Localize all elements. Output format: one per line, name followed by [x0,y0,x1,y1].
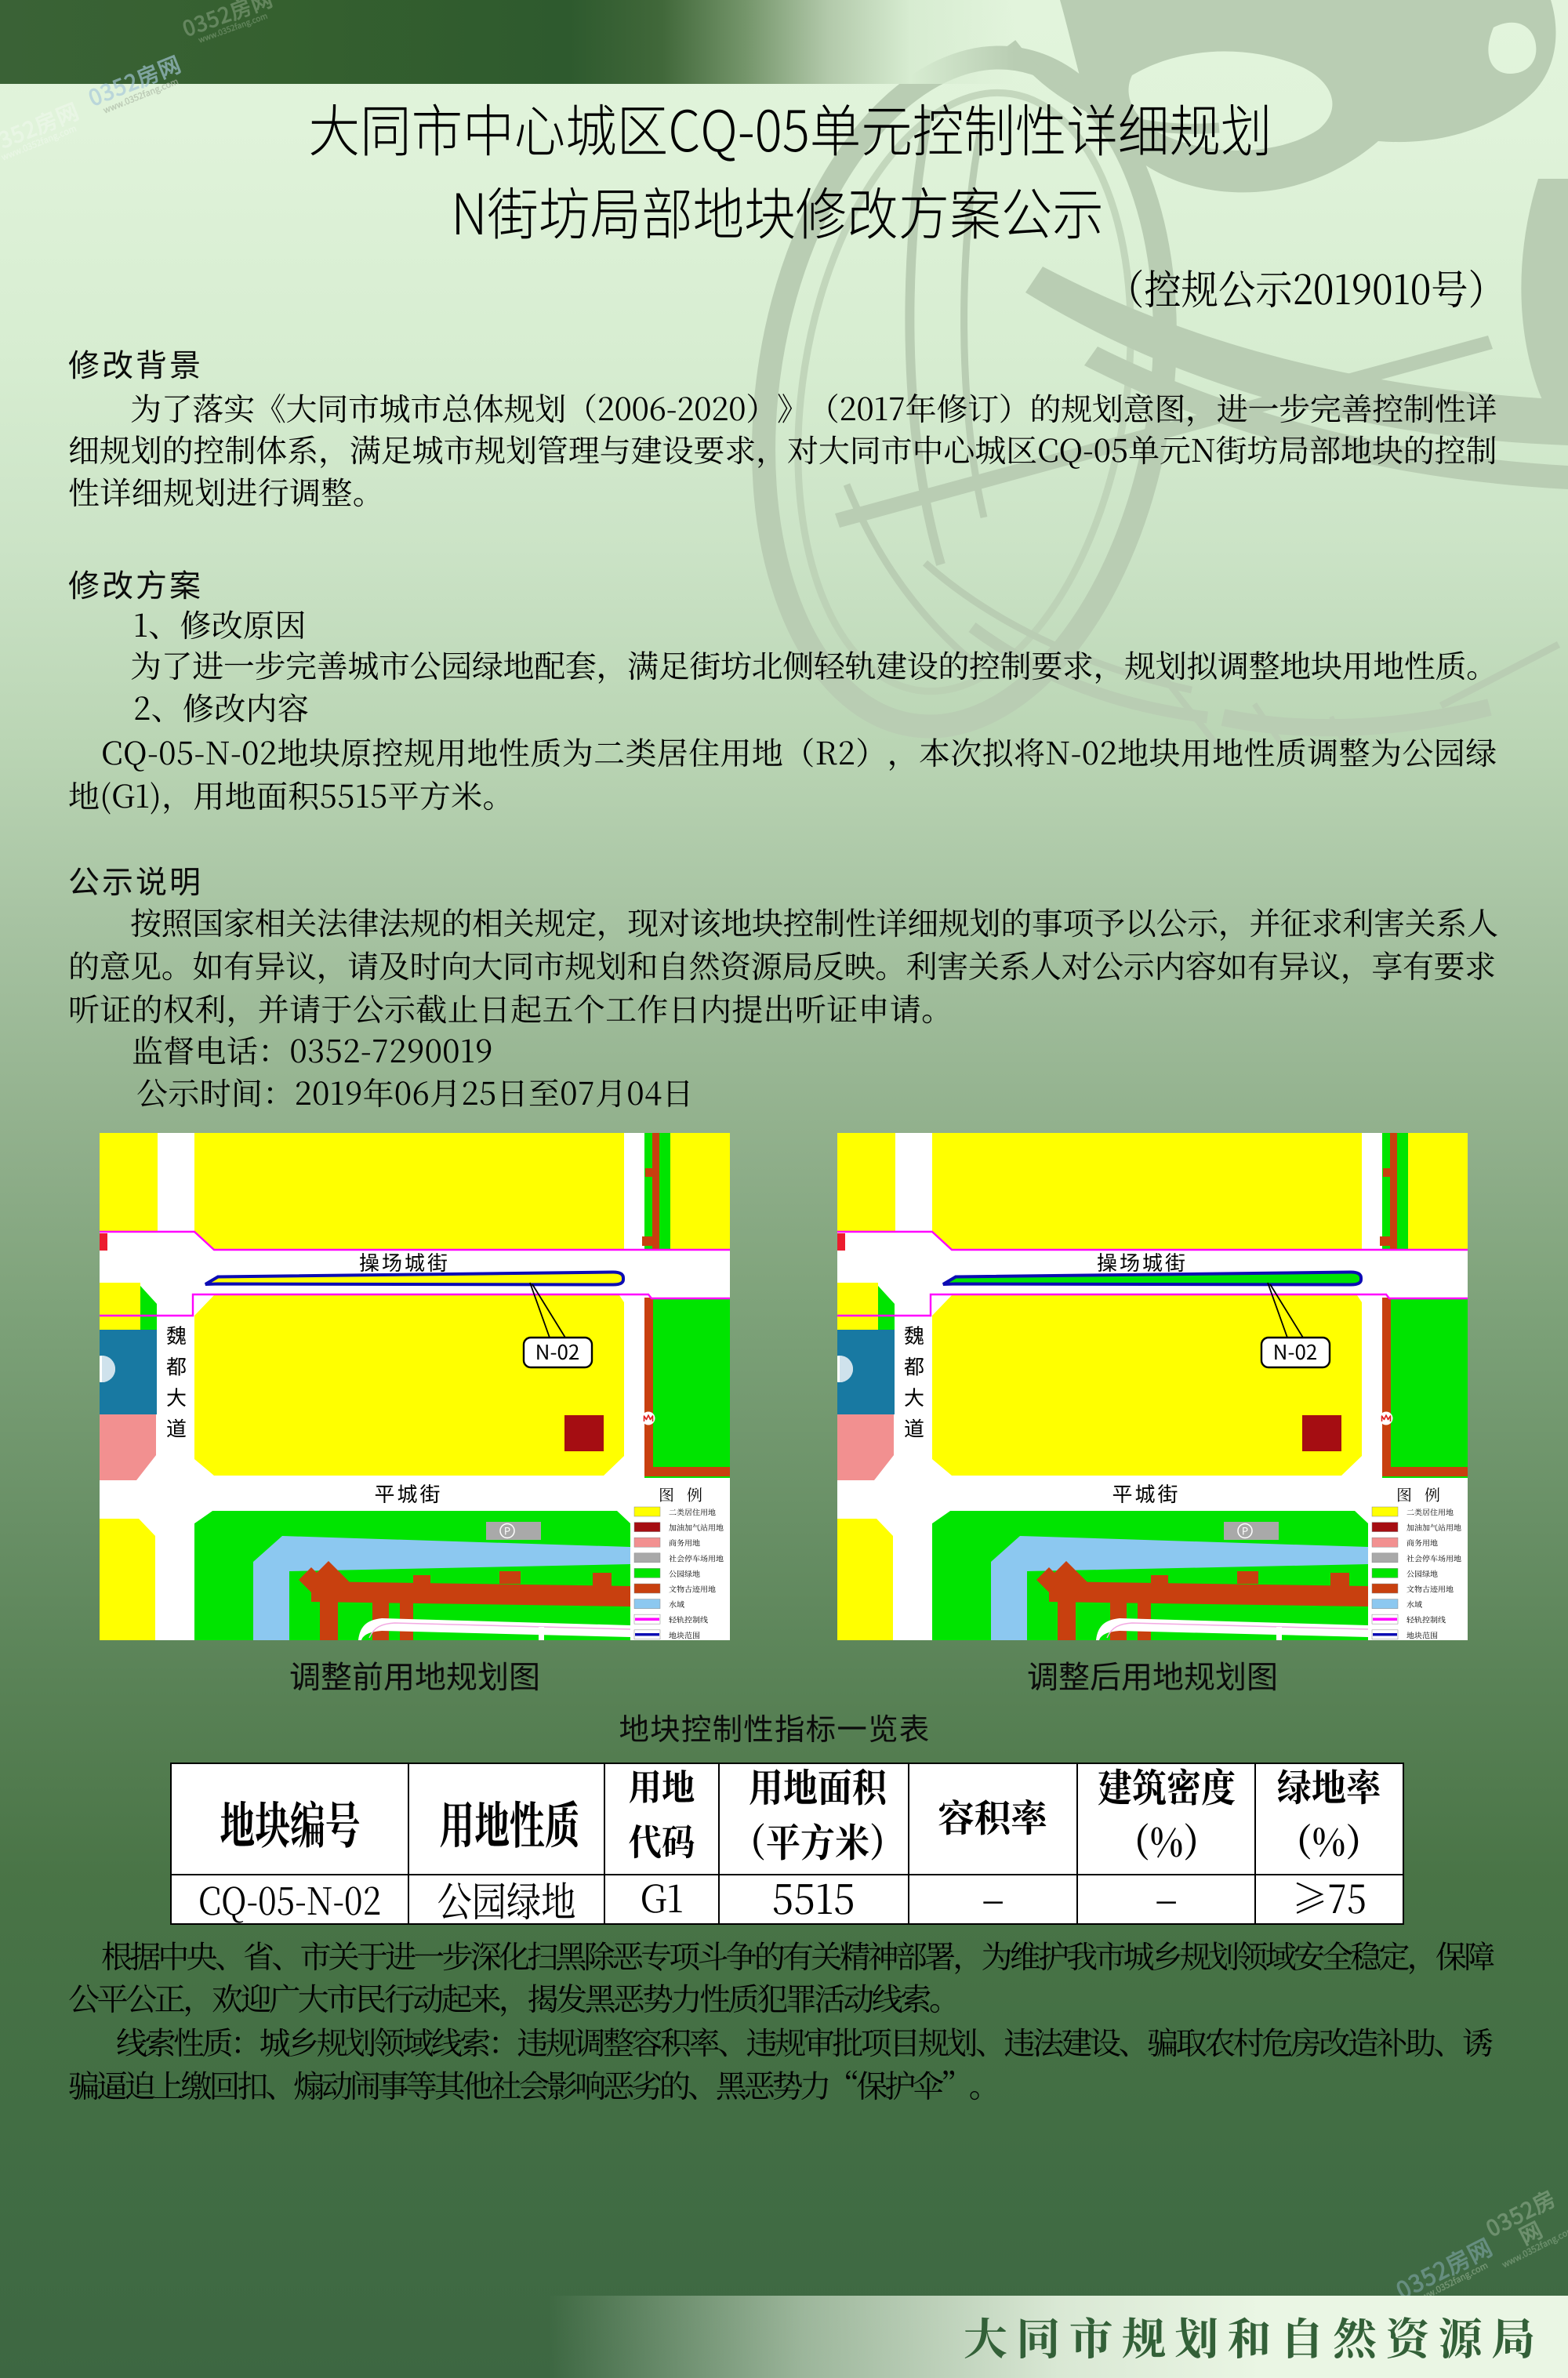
svg-text:地块范围: 地块范围 [1406,1628,1438,1640]
svg-text:文物古迹用地: 文物古迹用地 [669,1583,716,1595]
svg-text:水域: 水域 [669,1598,684,1610]
svg-text:地块范围: 地块范围 [669,1628,700,1640]
svg-text:魏: 魏 [166,1320,187,1349]
svg-text:N-02: N-02 [535,1337,580,1366]
svg-text:道: 道 [166,1414,187,1443]
svg-text:商务用地: 商务用地 [1406,1537,1438,1548]
svg-text:水域: 水域 [1406,1598,1422,1610]
svg-text:加油加气站用地: 加油加气站用地 [669,1521,724,1533]
svg-text:图例: 图例 [659,1483,715,1505]
svg-text:P: P [1242,1523,1248,1538]
svg-text:图例: 图例 [1396,1483,1453,1505]
svg-text:商务用地: 商务用地 [669,1537,700,1548]
svg-text:社会停车场用地: 社会停车场用地 [1406,1552,1461,1563]
svg-text:平城街: 平城街 [1112,1479,1180,1508]
svg-text:公园绿地: 公园绿地 [669,1567,700,1579]
svg-text:二类居住用地: 二类居住用地 [669,1506,716,1518]
svg-text:道: 道 [904,1414,924,1443]
svg-text:社会停车场用地: 社会停车场用地 [669,1552,724,1563]
svg-text:二类居住用地: 二类居住用地 [1406,1506,1454,1518]
svg-text:加油加气站用地: 加油加气站用地 [1406,1521,1461,1533]
svg-text:N-02: N-02 [1273,1337,1318,1366]
svg-text:大: 大 [166,1382,187,1411]
svg-text:平城街: 平城街 [374,1479,442,1508]
svg-text:魏: 魏 [904,1320,924,1349]
svg-text:轻轨控制线: 轻轨控制线 [669,1614,708,1625]
svg-text:操场城街: 操场城街 [1097,1247,1188,1276]
svg-text:轻轨控制线: 轻轨控制线 [1406,1614,1446,1625]
svg-text:公园绿地: 公园绿地 [1406,1567,1438,1579]
svg-text:都: 都 [166,1352,187,1381]
svg-text:P: P [504,1523,510,1538]
svg-text:操场城街: 操场城街 [359,1247,450,1276]
svg-text:都: 都 [904,1352,924,1381]
svg-text:大: 大 [904,1382,924,1411]
svg-text:文物古迹用地: 文物古迹用地 [1406,1583,1454,1595]
